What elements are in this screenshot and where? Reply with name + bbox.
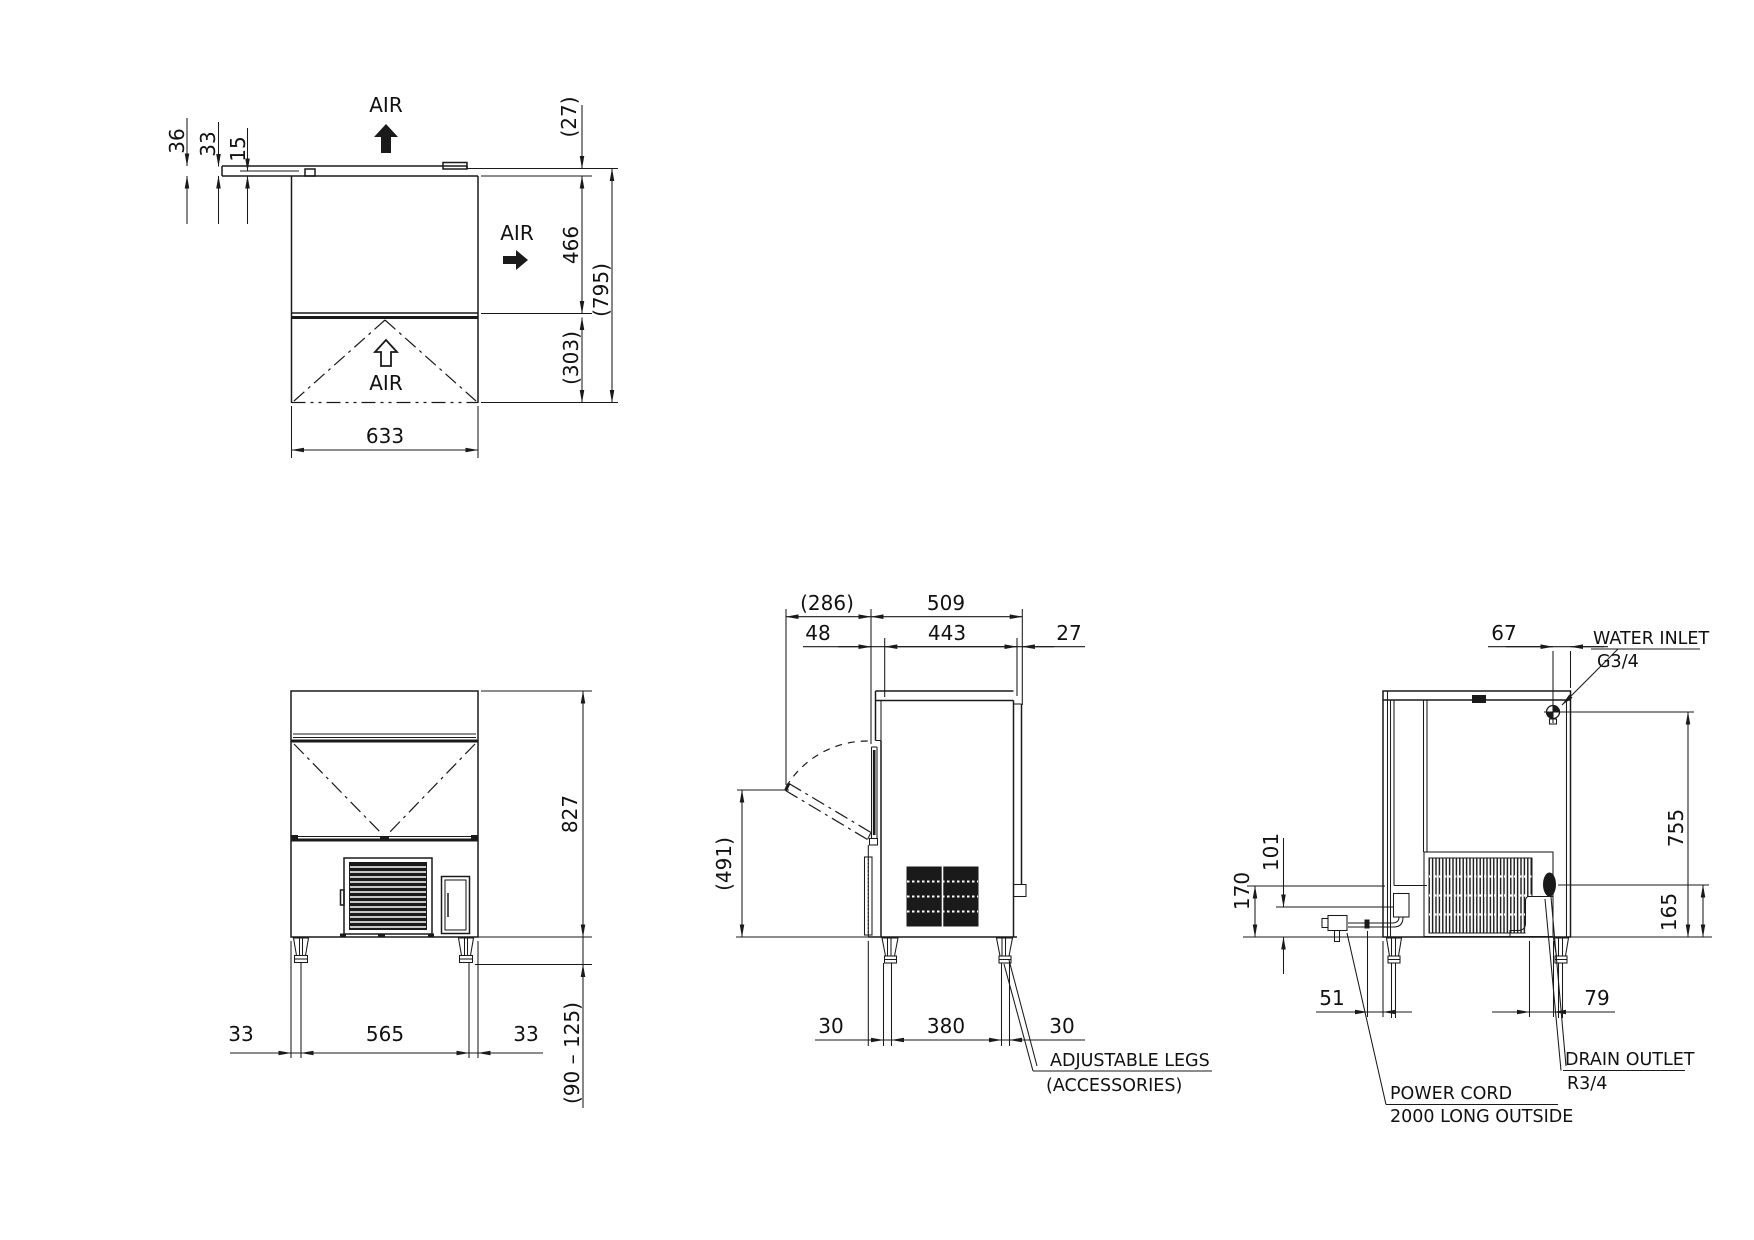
dim-51: 51 bbox=[1319, 986, 1344, 1010]
dim-leg-range: (90 – 125) bbox=[560, 1002, 584, 1104]
label-drain-thread: R3/4 bbox=[1567, 1074, 1607, 1094]
dim-15: 15 bbox=[226, 136, 250, 161]
dim-30-front: 30 bbox=[818, 1014, 843, 1038]
lid-latch-left bbox=[305, 169, 315, 176]
air-arrow-right-icon bbox=[503, 250, 528, 270]
note-adjustable-legs: ADJUSTABLE LEGS bbox=[1050, 1051, 1210, 1071]
dim-443: 443 bbox=[928, 621, 966, 645]
dim-633: 633 bbox=[366, 424, 404, 448]
dim-565: 565 bbox=[366, 1022, 404, 1046]
dim-509: 509 bbox=[927, 591, 965, 615]
air-label-top: AIR bbox=[369, 93, 403, 117]
dim-101: 101 bbox=[1259, 833, 1283, 871]
dim-827: 827 bbox=[558, 795, 582, 833]
label-water-thread: G3/4 bbox=[1597, 652, 1639, 672]
air-arrow-outline-icon bbox=[375, 340, 397, 366]
air-intake-line bbox=[294, 744, 383, 835]
condenser-louver-panel bbox=[341, 858, 433, 934]
dim-795: (795) bbox=[589, 263, 613, 317]
air-label-right: AIR bbox=[500, 221, 534, 245]
leg-side-rear bbox=[997, 938, 1013, 963]
label-water-inlet: WATER INLET bbox=[1593, 629, 1709, 649]
dimensional-drawing: AIR AIR AIR 36 33 15 (27) 466 (795) (303… bbox=[0, 0, 1754, 1240]
front-view: 827 (90 – 125) 33 565 33 bbox=[228, 691, 592, 1108]
dim-380: 380 bbox=[927, 1014, 965, 1038]
air-intake-line bbox=[387, 744, 475, 835]
dim-165: 165 bbox=[1657, 893, 1681, 931]
dim-755: 755 bbox=[1664, 809, 1688, 847]
access-door bbox=[442, 877, 470, 934]
label-power-cord-2: 2000 LONG OUTSIDE bbox=[1390, 1107, 1573, 1127]
dim-286: (286) bbox=[800, 591, 854, 615]
dim-33-right: 33 bbox=[513, 1022, 538, 1046]
leg-front-left bbox=[294, 938, 309, 963]
dim-170: 170 bbox=[1230, 872, 1254, 910]
dim-48: 48 bbox=[805, 621, 830, 645]
dim-27: 27 bbox=[1056, 621, 1081, 645]
drain-outlet-fitting bbox=[1543, 873, 1556, 897]
leg-front-right bbox=[459, 938, 474, 963]
label-power-cord: POWER CORD bbox=[1390, 1084, 1512, 1104]
dim-466: 466 bbox=[559, 226, 583, 264]
dim-303: (303) bbox=[559, 331, 583, 385]
dim-491: (491) bbox=[712, 837, 736, 891]
note-accessories: (ACCESSORIES) bbox=[1046, 1076, 1182, 1096]
side-view: (286) 509 48 443 27 (491) 30 380 30 ADJU… bbox=[712, 591, 1212, 1096]
water-inlet-fitting bbox=[1544, 701, 1562, 724]
technical-drawing-page: AIR AIR AIR 36 33 15 (27) 466 (795) (303… bbox=[0, 0, 1754, 1240]
label-drain-outlet: DRAIN OUTLET bbox=[1565, 1050, 1695, 1070]
dim-30-rear: 30 bbox=[1049, 1014, 1074, 1038]
dim-27-paren: (27) bbox=[557, 96, 581, 137]
top-view: AIR AIR AIR 36 33 15 (27) 466 (795) (303… bbox=[165, 93, 618, 458]
door-swing-arc bbox=[786, 741, 869, 787]
condenser-coil bbox=[1424, 852, 1556, 937]
leg-rear-left bbox=[1387, 938, 1402, 963]
power-plug bbox=[1335, 931, 1340, 942]
condenser-grille-side bbox=[907, 867, 979, 927]
rear-view: 67 WATER INLET G3/4 755 165 170 101 51 bbox=[1230, 621, 1712, 1127]
air-arrow-up-icon bbox=[374, 124, 398, 153]
dim-36: 36 bbox=[165, 128, 189, 153]
leg-side-front bbox=[882, 938, 898, 963]
power-cord bbox=[1322, 894, 1409, 942]
rear-fitting bbox=[1014, 885, 1027, 897]
dim-33-left: 33 bbox=[228, 1022, 253, 1046]
air-label-bottom: AIR bbox=[369, 371, 403, 395]
dim-33-top: 33 bbox=[196, 131, 220, 156]
dim-67: 67 bbox=[1491, 621, 1516, 645]
dim-79: 79 bbox=[1584, 986, 1609, 1010]
bin-door-open bbox=[786, 741, 872, 840]
